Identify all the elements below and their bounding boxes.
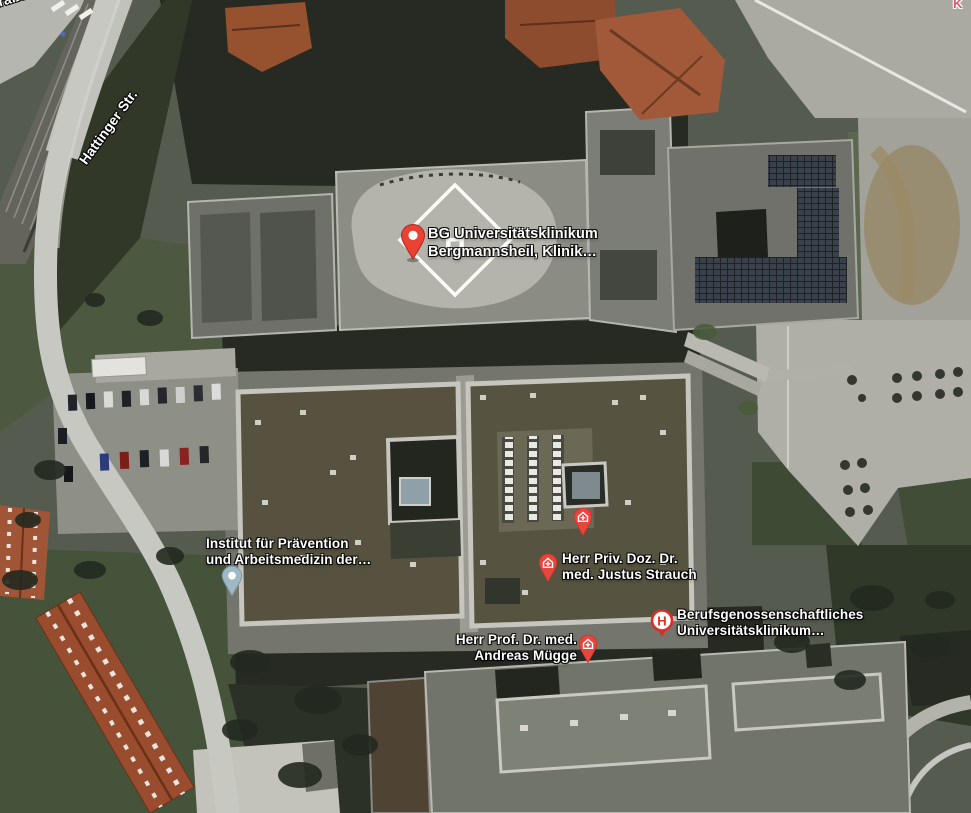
map-pin-strauch[interactable]	[537, 553, 559, 583]
map-pin-institut[interactable]	[220, 565, 244, 597]
hospital-h-icon: H	[649, 608, 675, 639]
label-line: Berufsgenossenschaftliches	[677, 607, 863, 622]
map-label-institut[interactable]: Institut für Prävention und Arbeitsmediz…	[206, 536, 371, 568]
label-line: BG Universitätsklinikum	[428, 226, 598, 242]
map-pin-bergmannsheil[interactable]	[399, 223, 427, 263]
map-pin-klinikum-h[interactable]: H	[649, 608, 675, 639]
label-line: Bergmannsheil, Klinik…	[428, 244, 597, 260]
poi-label-partial-k: K	[953, 0, 962, 11]
label-line: Universitätsklinikum…	[677, 623, 825, 638]
map-label-bergmannsheil[interactable]: BG Universitätsklinikum Bergmannsheil, K…	[428, 226, 598, 261]
health-facility-pin-icon	[537, 553, 559, 583]
map-pin-health-unnamed[interactable]	[572, 507, 594, 537]
map-label-strauch[interactable]: Herr Priv. Doz. Dr. med. Justus Strauch	[562, 551, 697, 583]
blue-pin-icon	[220, 565, 244, 597]
label-line: med. Justus Strauch	[562, 567, 697, 582]
label-line: Herr Prof. Dr. med.	[456, 632, 577, 647]
label-line: Herr Priv. Doz. Dr.	[562, 551, 678, 566]
label-line: Andreas Mügge	[474, 648, 577, 663]
health-facility-pin-icon	[577, 634, 599, 664]
satellite-imagery: H	[0, 0, 971, 813]
health-facility-pin-icon	[572, 507, 594, 537]
map-label-muegge[interactable]: Herr Prof. Dr. med. Andreas Mügge	[455, 632, 577, 664]
red-pin-icon	[399, 223, 427, 263]
map-pin-muegge[interactable]	[577, 634, 599, 664]
map-label-klinikum[interactable]: Berufsgenossenschaftliches Universitätsk…	[677, 607, 863, 639]
map-canvas[interactable]: H	[0, 0, 971, 813]
svg-text:H: H	[657, 614, 666, 629]
label-line: Institut für Prävention	[206, 536, 349, 551]
